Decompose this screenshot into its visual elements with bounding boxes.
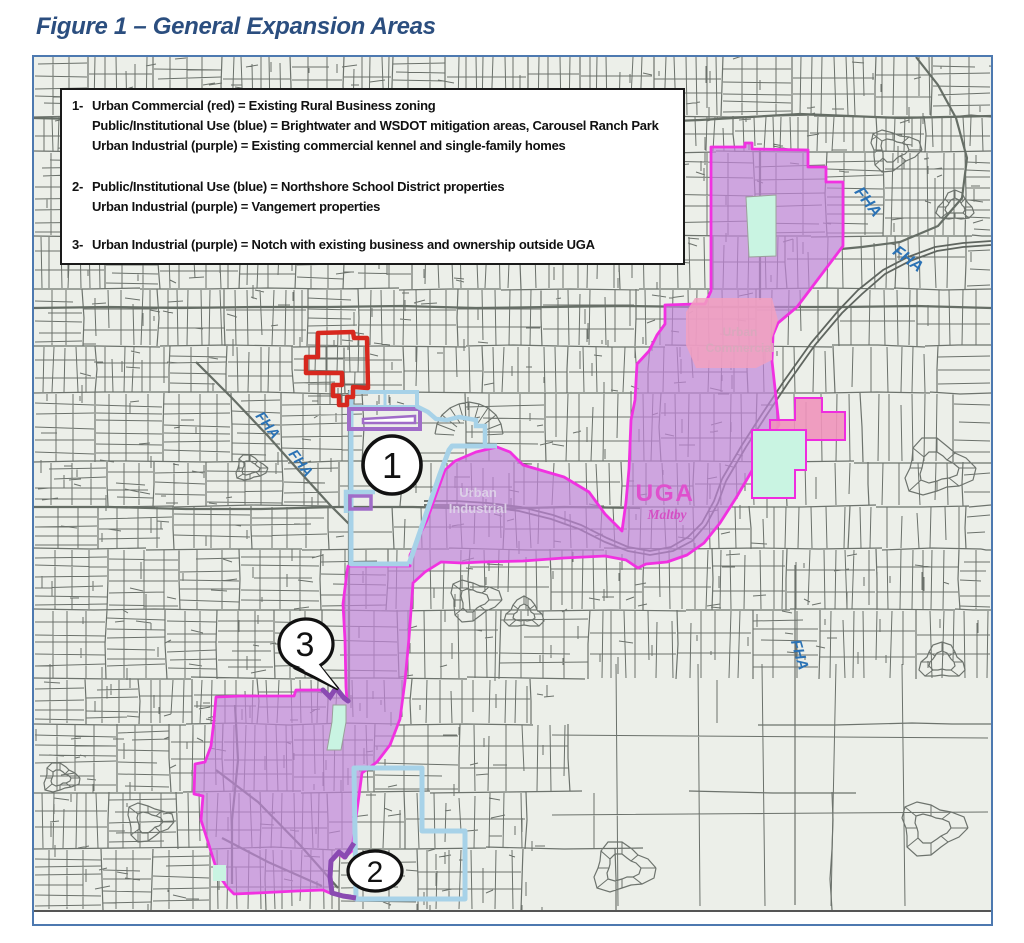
svg-text:UGA: UGA xyxy=(636,480,695,507)
svg-text:Maltby: Maltby xyxy=(647,507,688,522)
svg-text:Industrial: Industrial xyxy=(449,501,508,516)
svg-text:Urban: Urban xyxy=(459,485,497,500)
svg-text:3: 3 xyxy=(296,626,315,664)
svg-text:1: 1 xyxy=(382,445,402,486)
svg-text:Urban: Urban xyxy=(723,325,758,339)
svg-text:2: 2 xyxy=(367,856,384,889)
svg-text:Commercial: Commercial xyxy=(706,341,775,355)
